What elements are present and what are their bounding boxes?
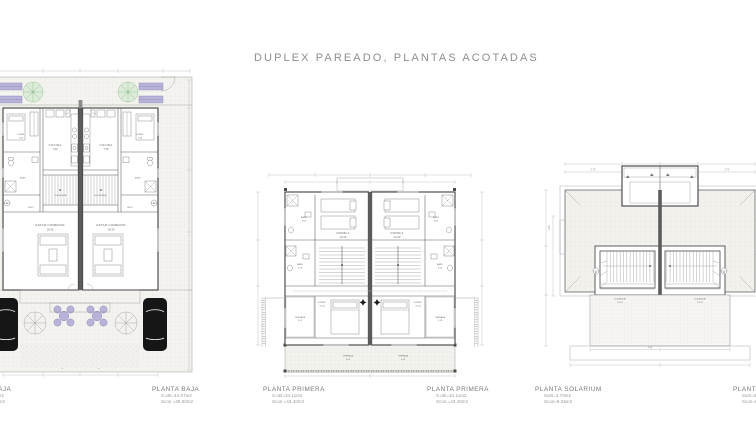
stairs-icon	[600, 251, 655, 289]
room-label-cocina: COCINA	[49, 143, 63, 147]
porch-roof	[337, 178, 403, 191]
window	[321, 191, 343, 192]
room-area: 11.40	[319, 305, 325, 307]
room-area: 7.00	[52, 147, 58, 151]
room-area: 10.70	[617, 302, 623, 304]
plan-title: PLANTA SOLARIUM	[535, 386, 602, 393]
dim-label: 4.04	[648, 347, 653, 350]
room-area: 7.00	[103, 147, 109, 151]
plan-label-baja: PLANTA BAJA S.util=43.07m2 Scon.=49.60m2	[152, 386, 199, 405]
room-area: 10.20	[394, 235, 401, 239]
car-icon	[0, 298, 18, 351]
room-label-bano: BAÑO	[301, 216, 307, 219]
dim-label: 1.50	[548, 225, 551, 230]
plan-title: PLANTA PRIMERA	[263, 386, 325, 393]
room-area: 18.35	[47, 228, 54, 232]
plan-title: PLANTA BAJA	[152, 386, 199, 393]
room-label-bano: BAÑO	[437, 263, 443, 266]
room-label-dorm1: DORM.1	[318, 302, 327, 304]
room-area: 18.35	[108, 228, 115, 232]
room-area: 11.40	[415, 305, 421, 307]
plan-title: PLANTA SOLARIUM	[733, 386, 756, 393]
room-label-cocina: COCINA	[100, 143, 114, 147]
plan-area-cons: Scon.=49.60m2	[152, 399, 199, 405]
room-label-terraza: TERRAZA	[343, 355, 354, 358]
window	[323, 344, 349, 345]
room-label-terraza: TERRAZA	[295, 316, 306, 319]
room-label-aseo: ASEO	[20, 177, 26, 180]
dim-label: 2.75	[725, 169, 730, 172]
room-label-escalera: ESCALERA	[95, 194, 107, 197]
window	[2, 122, 4, 136]
room-label-dorm1: DORM.1	[414, 302, 423, 304]
room-label-dorm: DORM.	[136, 134, 144, 136]
chimney	[79, 100, 83, 108]
plan-area-cons: Scon.=43.40m2	[427, 399, 489, 405]
dim-label: 2.75	[591, 169, 596, 172]
room-label-solarium: SOLARIUM	[614, 297, 626, 300]
plan-label-primera-left: PLANTA PRIMERA S.util=34.11m2 Scon.=43.4…	[263, 386, 325, 405]
room-area: 10.20	[340, 235, 347, 239]
party-wall	[368, 192, 372, 345]
room-label-aseo: ASEO	[135, 177, 141, 180]
party-wall	[658, 190, 662, 295]
plan-area-cons: Scon=8.05m2	[535, 399, 602, 405]
tree-icon	[23, 82, 43, 102]
plan-label-solarium: PLANTA SOLARIUM Sutil=3.70m2 Scon=8.05m2	[535, 386, 602, 405]
pillar	[284, 188, 287, 191]
room-label-solarium: SOLARIUM	[694, 297, 706, 300]
drawing-sheet: { "page": { "title": "DUPLEX PAREADO, PL…	[0, 0, 756, 443]
section-marker-label: A3	[595, 271, 597, 274]
balcony-railing	[262, 298, 285, 347]
room-label-dorm2: DORM.2	[337, 231, 350, 235]
planta-solarium-plan: 2.75 2.75 4.04 1.50 SOLARIUM 10.70 SOLAR…	[540, 156, 756, 368]
plan-title: PLANTA BAJA	[0, 386, 11, 393]
window	[2, 168, 4, 178]
plan-area-cons: Scon.=43.40m2	[263, 399, 325, 405]
page-title: DUPLEX PAREADO, PLANTAS ACOTADAS	[254, 52, 539, 64]
plan-label-primera-right: PLANTA PRIMERA S.util=34.11m2 Scon.=43.4…	[427, 386, 489, 405]
plan-title: PLANTA PRIMERA	[427, 386, 489, 393]
section-marker-label: A3	[6, 202, 8, 205]
room-label-escalera: ESCALERA	[55, 194, 67, 197]
fan-tree-icon	[24, 312, 46, 334]
room-label-bano: BAÑO	[433, 216, 439, 219]
room-label-estar: ESTAR-COMEDOR	[96, 223, 126, 227]
room-label-terraza: TERRAZA	[398, 355, 409, 358]
room-label-terraza: TERRAZA	[435, 316, 446, 319]
section-marker-label: A3	[153, 202, 155, 205]
room-label-estar: ESTAR-COMEDOR	[35, 223, 65, 227]
window	[284, 208, 285, 226]
plan-area-cons: Scon.=49.60m2	[0, 399, 11, 405]
solarium-terrace	[590, 295, 730, 346]
room-label-vest: VEST.	[127, 207, 133, 209]
planta-baja-plan: COCINA 7.00 COCINA 7.00 DORM. 7.65 DORM.…	[0, 60, 210, 382]
garden-bed	[20, 344, 140, 368]
section-marker-label: A3	[723, 271, 725, 274]
room-label-vest: VEST.	[28, 207, 34, 209]
lower-terrace	[285, 345, 455, 372]
window	[2, 228, 4, 252]
planta-primera-plan: BAÑO 4.00 BAÑO 4.00 DORM.2 10.20 DORM.2 …	[255, 168, 485, 380]
party-wall	[79, 108, 83, 290]
room-label-dorm: DORM.	[17, 134, 25, 136]
room-area: 10.70	[697, 302, 703, 304]
primera-unit	[256, 188, 368, 347]
window	[284, 308, 285, 328]
sofa-icon	[38, 234, 68, 276]
room-label-bano: BAÑO	[297, 263, 303, 266]
plan-label-solarium-cut: PLANTA SOLARIUM Sutil=3.70m2 Scon=8.05m2	[733, 386, 756, 405]
plan-area-cons: Scon=8.05m2	[733, 399, 756, 405]
plan-label-baja-cut: PLANTA BAJA S.util=43.07m2 Scon.=49.60m2	[0, 386, 11, 405]
room-label-dorm2: DORM.2	[391, 231, 404, 235]
bed-icon	[331, 300, 359, 334]
